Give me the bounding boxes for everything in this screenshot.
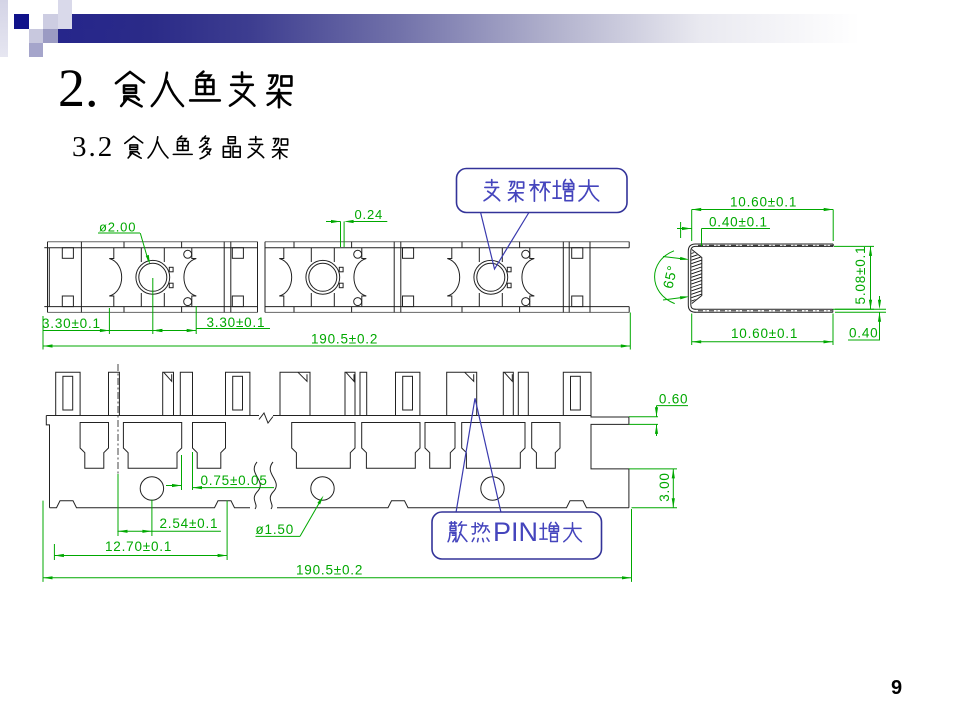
- svg-text:190.5±0.2: 190.5±0.2: [311, 332, 378, 347]
- svg-text:ø2.00: ø2.00: [99, 220, 136, 235]
- svg-text:65°: 65°: [660, 263, 681, 290]
- svg-text:10.60±0.1: 10.60±0.1: [730, 195, 797, 210]
- svg-text:5.08±0.1: 5.08±0.1: [853, 246, 868, 305]
- svg-text:3.30±0.1: 3.30±0.1: [42, 316, 101, 331]
- svg-text:190.5±0.2: 190.5±0.2: [296, 563, 363, 578]
- svg-text:3.30±0.1: 3.30±0.1: [207, 315, 266, 330]
- svg-text:0.60: 0.60: [659, 392, 688, 407]
- svg-text:12.70±0.1: 12.70±0.1: [105, 539, 172, 554]
- svg-text:0.40±0.1: 0.40±0.1: [709, 215, 768, 230]
- svg-text:2.54±0.1: 2.54±0.1: [160, 516, 219, 531]
- svg-text:ø1.50: ø1.50: [256, 522, 295, 537]
- svg-text:0.24: 0.24: [355, 207, 384, 222]
- svg-text:10.60±0.1: 10.60±0.1: [731, 326, 798, 341]
- svg-text:3.00: 3.00: [657, 472, 672, 501]
- svg-text:0.40: 0.40: [849, 326, 878, 341]
- svg-text:0.75±0.05: 0.75±0.05: [201, 473, 268, 488]
